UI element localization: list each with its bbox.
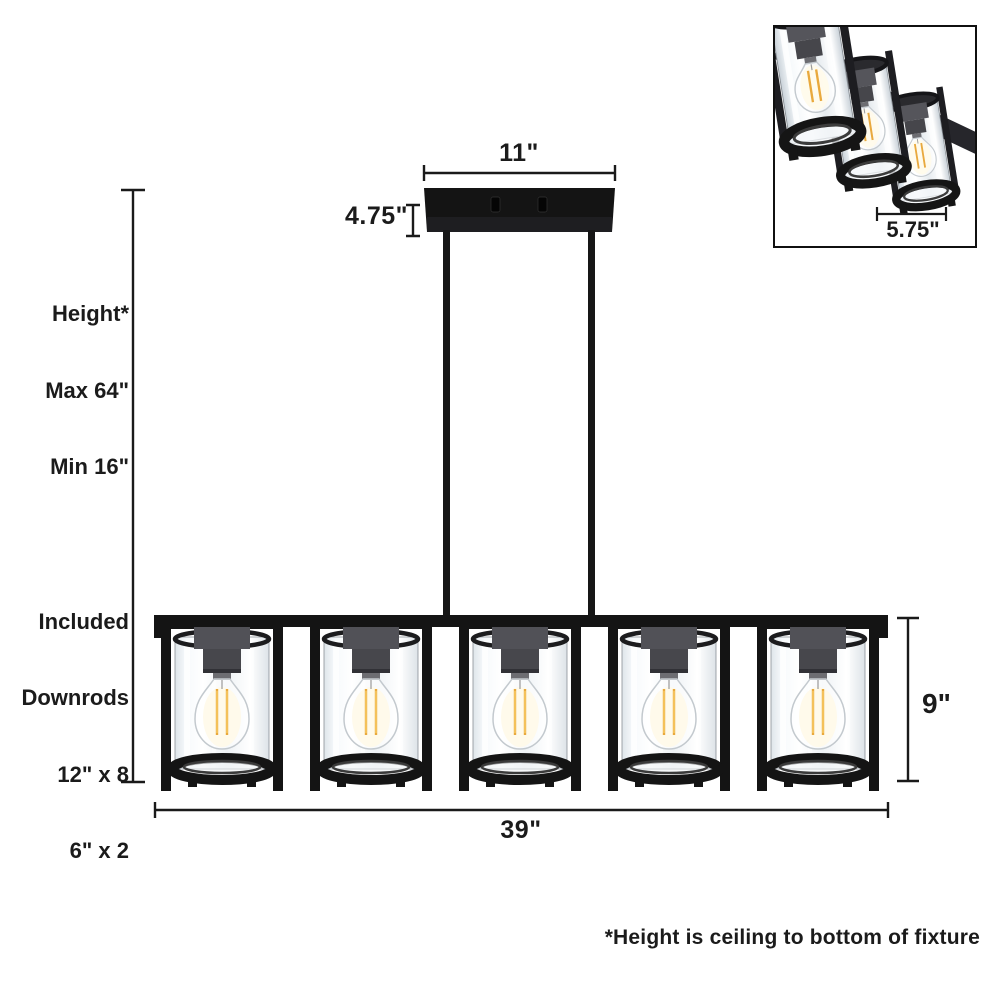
height-footnote: *Height is ceiling to bottom of fixture xyxy=(598,926,980,950)
shade-1 xyxy=(161,619,283,791)
shade-height-label: 9" xyxy=(922,688,951,720)
canopy-width-label: 11" xyxy=(459,139,579,168)
canopy-depth-label: 4.75" xyxy=(330,202,408,231)
height-title: Height* xyxy=(0,301,129,327)
shade-4 xyxy=(608,619,730,791)
shade-detail-inset: 5.75" xyxy=(773,25,977,248)
shade-3 xyxy=(459,619,581,791)
downrod-right xyxy=(588,230,595,620)
fixture-length-label: 39" xyxy=(461,816,581,845)
dimension-diagram: 11" 4.75" 9" 39" Height* Max 64" Min 16"… xyxy=(0,0,1000,1000)
height-max: Max 64" xyxy=(0,378,129,404)
shade-5 xyxy=(757,619,879,791)
downrods-title: Downrods xyxy=(0,685,129,711)
ceiling-canopy xyxy=(424,188,615,232)
height-min: Min 16" xyxy=(0,454,129,480)
downrods-size-2: 6" x 2 xyxy=(0,838,129,864)
inset-shade-front xyxy=(775,27,867,162)
shade-2 xyxy=(310,619,432,791)
height-annotation-block: Height* Max 64" Min 16" Included Downrod… xyxy=(0,250,129,915)
shade-diameter-label: 5.75" xyxy=(858,217,968,243)
downrods-size-1: 12" x 8 xyxy=(0,762,129,788)
inset-shade-art xyxy=(775,27,975,246)
downrod-left xyxy=(443,230,450,620)
downrods-included: Included xyxy=(0,609,129,635)
